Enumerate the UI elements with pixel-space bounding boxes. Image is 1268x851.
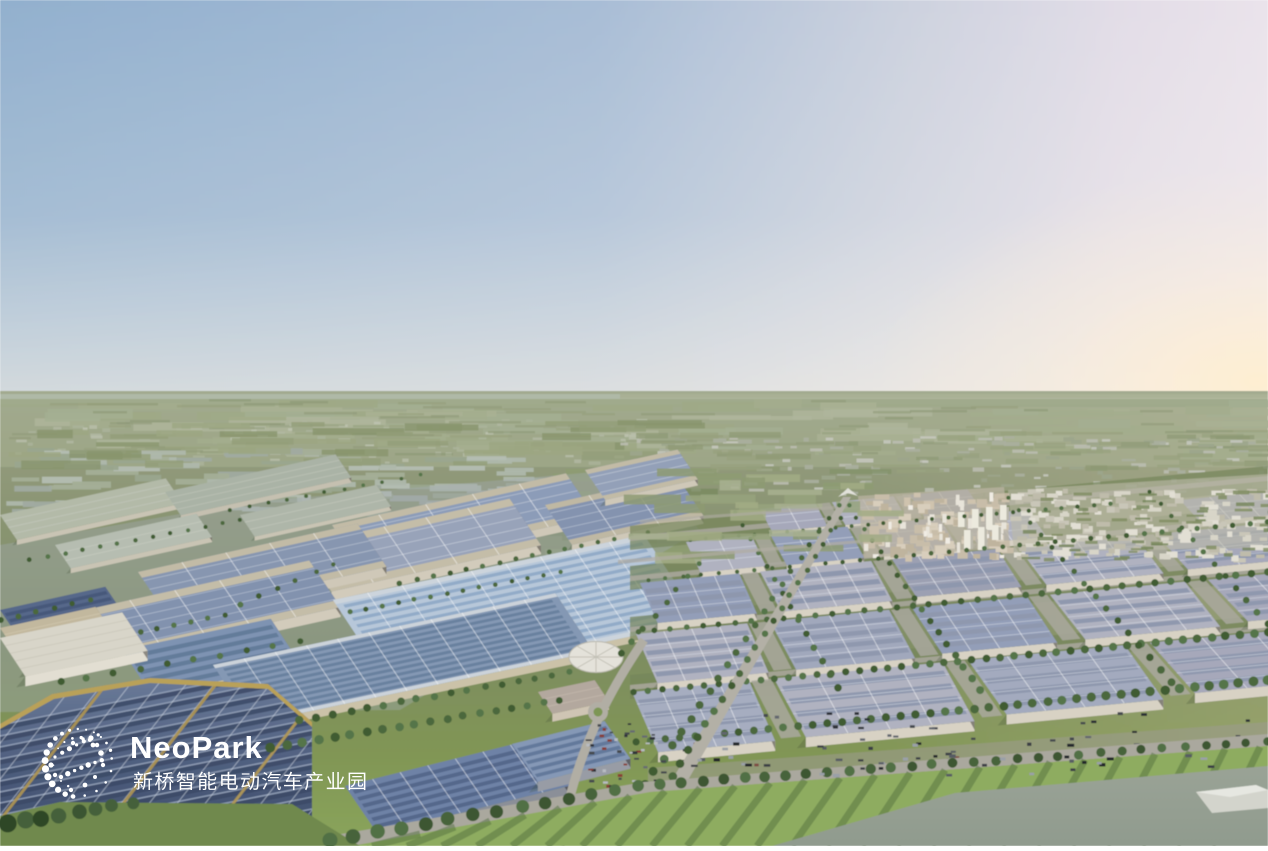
svg-text:NeoPark: NeoPark [130, 730, 263, 765]
